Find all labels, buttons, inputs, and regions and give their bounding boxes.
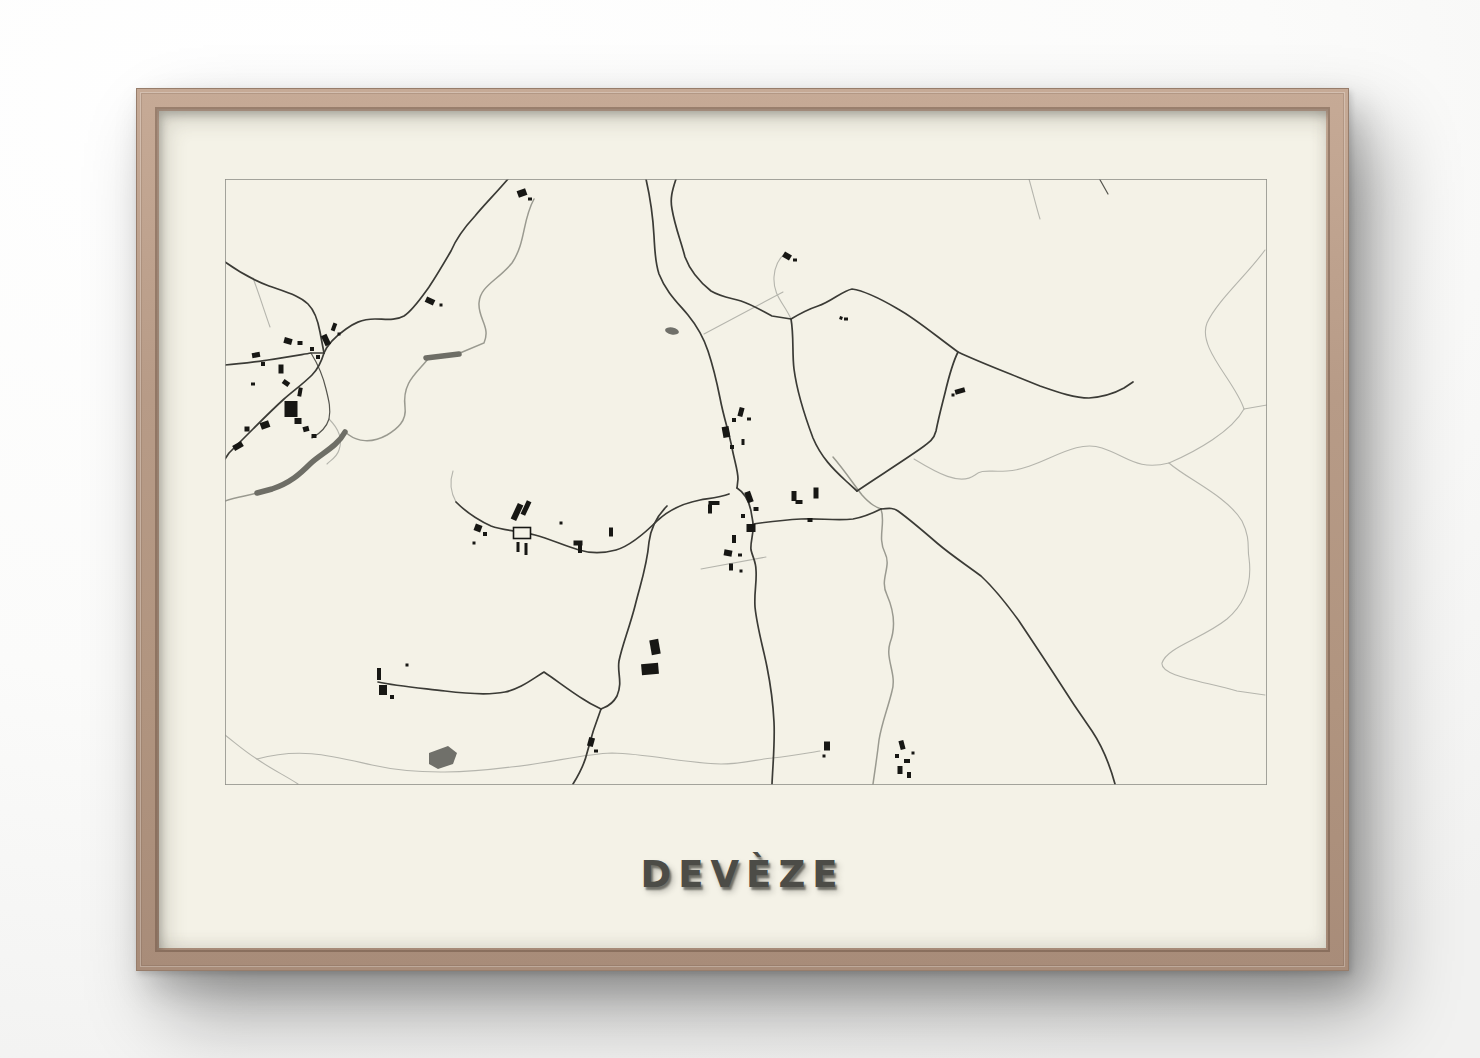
- picture-frame: DEVÈZE: [136, 88, 1349, 971]
- map-canvas: [225, 179, 1267, 785]
- wall: DEVÈZE: [0, 0, 1480, 1058]
- poster-paper: DEVÈZE: [159, 111, 1326, 948]
- map-title: DEVÈZE: [159, 853, 1326, 896]
